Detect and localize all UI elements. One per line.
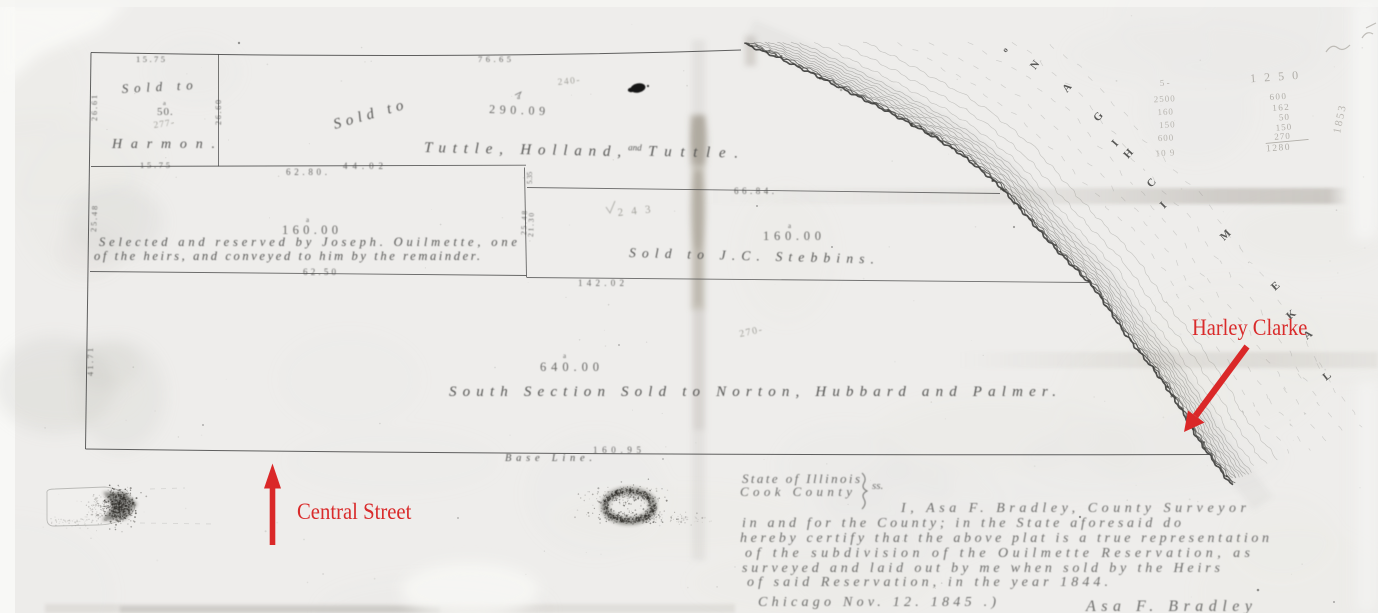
svg-text:600: 600	[1269, 91, 1288, 102]
svg-text:150: 150	[1159, 119, 1176, 130]
svg-text:surveyed and laid out by me wh: surveyed and laid out by me when sold by…	[742, 561, 1221, 576]
svg-text:hereby certify that the above: hereby certify that the above plat is a …	[740, 531, 1269, 546]
svg-text:Harley Clarke: Harley Clarke	[1192, 315, 1307, 340]
svg-text:26.61: 26.61	[90, 95, 99, 121]
svg-text:600: 600	[1158, 132, 1175, 143]
svg-text:21.30: 21.30	[526, 213, 536, 238]
svg-text:160: 160	[1157, 106, 1174, 117]
svg-text:and: and	[628, 142, 642, 152]
svg-text:of the heirs, and conveyed to: of the heirs, and conveyed to him by the…	[94, 249, 480, 263]
svg-text:5 -: 5 -	[1160, 77, 1170, 87]
svg-text:26.60: 26.60	[214, 100, 223, 125]
svg-text:1280: 1280	[1266, 143, 1292, 155]
svg-text:25.48: 25.48	[89, 206, 99, 232]
svg-text:5.35: 5.35	[526, 171, 534, 184]
svg-text:ss.: ss.	[872, 480, 883, 492]
svg-text:10 9: 10 9	[1155, 147, 1175, 158]
svg-text:270: 270	[1274, 131, 1291, 142]
svg-text:50.: 50.	[157, 106, 174, 118]
svg-text:Central Street: Central Street	[297, 499, 411, 524]
svg-text:Selected and reserved by Josep: Selected and reserved by Joseph. Ouilmet…	[99, 235, 517, 249]
svg-text:2500: 2500	[1153, 93, 1175, 104]
